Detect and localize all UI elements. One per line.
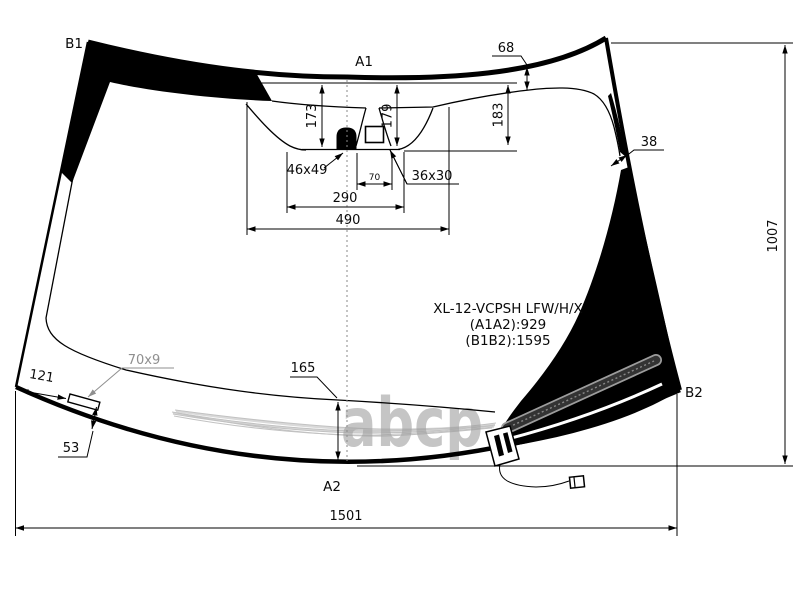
ref-point-a2: A2 [323,479,341,495]
dim-1501-label: 1501 [329,509,362,524]
dim-183-label: 183 [492,103,507,128]
windshield-technical-drawing: abcp [0,0,800,600]
diagram-canvas: abcp [0,0,800,600]
corner-bracket-size-label: 70x9 [128,353,161,368]
part-code: XL-12-VCPSH LFW/H/X [433,301,583,317]
dim-1007-label: 1007 [766,219,781,252]
dim-53-label: 53 [63,441,80,456]
dim-70-label: 70 [369,173,381,183]
part-dim-a1a2: (A1A2):929 [470,317,547,333]
camera-window-size-label: 36x30 [412,169,453,184]
dim-173-label: 173 [305,104,320,129]
connector-wire [500,464,569,487]
ref-point-b1: B1 [65,36,83,52]
plug-connector [569,476,584,488]
dim-179-label: 179 [381,104,396,129]
dim-38-label: 38 [641,135,658,150]
dim-490-label: 490 [336,213,361,228]
dim-165-label: 165 [291,361,316,376]
ref-point-a1: A1 [355,54,373,70]
rain-sensor-size-label: 46x49 [287,163,328,178]
part-dim-b1b2: (B1B2):1595 [465,333,550,349]
dim-68-label: 68 [498,41,515,56]
dim-290-label: 290 [333,191,358,206]
ref-point-b2: B2 [685,385,703,401]
